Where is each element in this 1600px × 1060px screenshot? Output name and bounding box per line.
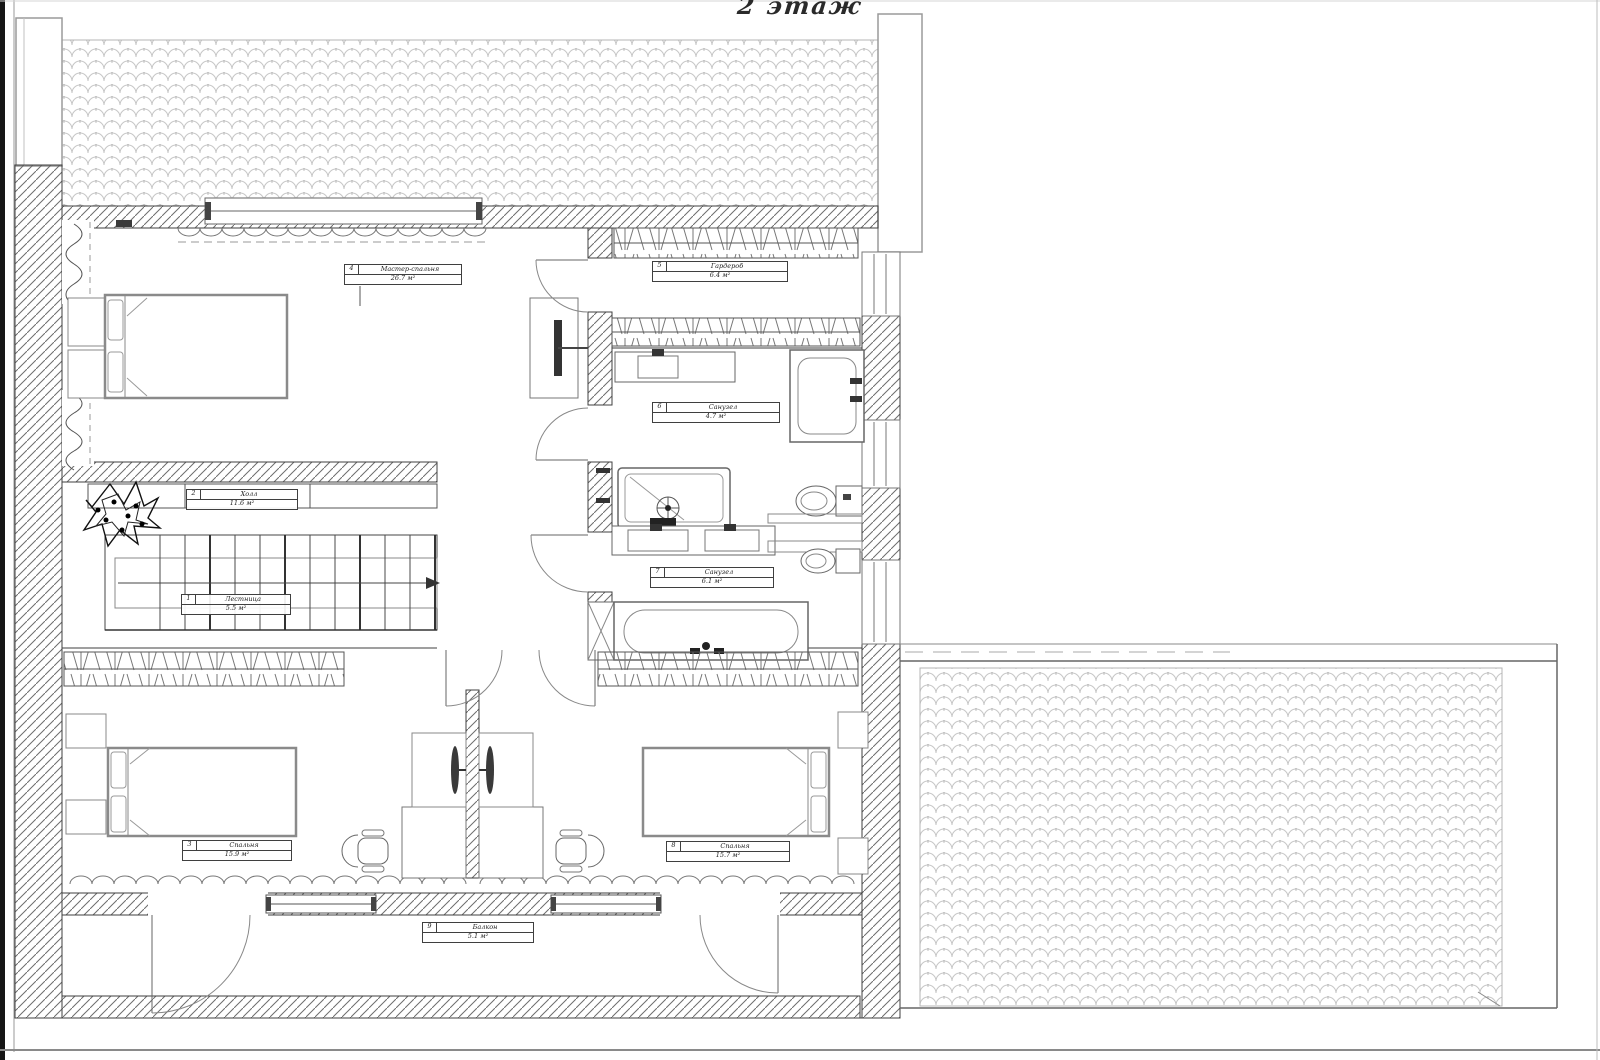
room-number: 2 xyxy=(187,490,201,499)
staircase xyxy=(105,535,440,630)
room-name: Спальня xyxy=(681,843,789,850)
room-label-stairs: 1Лестница 5.5 м² xyxy=(181,594,291,615)
room-area: 11.6 м² xyxy=(187,500,297,509)
room-number: 4 xyxy=(345,265,359,274)
bed-left xyxy=(108,748,296,836)
room-name: Гардероб xyxy=(667,263,787,270)
room-number: 8 xyxy=(667,842,681,851)
bed-right xyxy=(643,748,829,836)
room-name: Холл xyxy=(201,491,297,498)
bidet xyxy=(801,549,860,573)
room-label-bathroom-top: 6Санузел 4.7 м² xyxy=(652,402,780,423)
room-name: Санузел xyxy=(667,404,779,411)
bathroom-bottom-fixtures xyxy=(588,468,862,660)
master-bed xyxy=(105,295,287,398)
drawing-page: 2 этаж 4Мастер-спальня 26.7 м² 5Гардероб… xyxy=(0,0,1600,1060)
room-label-bathroom-bottom: 7Санузел 6.1 м² xyxy=(650,567,774,588)
bathroom-top-fixtures xyxy=(615,349,864,442)
room-number: 3 xyxy=(183,841,197,850)
room-label-bedroom-left: 3Спальня 15.9 м² xyxy=(182,840,292,861)
bathtub-horizontal xyxy=(588,602,808,660)
tv-unit xyxy=(530,298,588,398)
wardrobe-rails xyxy=(612,228,860,346)
room-number: 1 xyxy=(182,595,196,604)
desk-left xyxy=(402,807,466,878)
room-area: 15.9 м² xyxy=(183,851,291,860)
master-bedroom-furniture xyxy=(68,295,588,398)
room-area: 6.1 м² xyxy=(651,578,773,587)
room-area: 15.7 м² xyxy=(667,852,789,861)
right-wall-windows xyxy=(862,252,900,644)
room-name: Мастер-спальня xyxy=(359,266,461,273)
room-name: Лестница xyxy=(196,596,290,603)
desk-right xyxy=(479,807,543,878)
room-name: Санузел xyxy=(665,569,773,576)
room-area: 6.4 м² xyxy=(653,272,787,281)
room-label-master-bedroom: 4Мастер-спальня 26.7 м² xyxy=(344,264,462,285)
toilet xyxy=(796,486,862,516)
room-label-hall: 2Холл 11.6 м² xyxy=(186,489,298,510)
room-number: 6 xyxy=(653,403,667,412)
room-area: 4.7 м² xyxy=(653,413,779,422)
room-number: 9 xyxy=(423,923,437,932)
room-label-balcony: 9Балкон 5.1 м² xyxy=(422,922,534,943)
room-name: Спальня xyxy=(197,842,291,849)
room-number: 5 xyxy=(653,262,667,271)
room-number: 7 xyxy=(651,568,665,577)
room-area: 5.5 м² xyxy=(182,605,290,614)
room-label-wardrobe: 5Гардероб 6.4 м² xyxy=(652,261,788,282)
room-area: 26.7 м² xyxy=(345,275,461,284)
room-name: Балкон xyxy=(437,924,533,931)
double-vanity xyxy=(612,524,775,555)
floor-plan-drawing xyxy=(0,0,1600,1060)
shower-tray xyxy=(618,468,730,528)
room-label-bedroom-right: 8Спальня 15.7 м² xyxy=(666,841,790,862)
bedroom-closets xyxy=(64,652,858,686)
floor-title: 2 этаж xyxy=(698,0,901,20)
terrace-roof xyxy=(900,644,1557,1008)
chair-left xyxy=(342,830,388,872)
bathtub-vertical xyxy=(790,350,864,442)
room-area: 5.1 м² xyxy=(423,933,533,942)
chair-right xyxy=(556,830,604,872)
